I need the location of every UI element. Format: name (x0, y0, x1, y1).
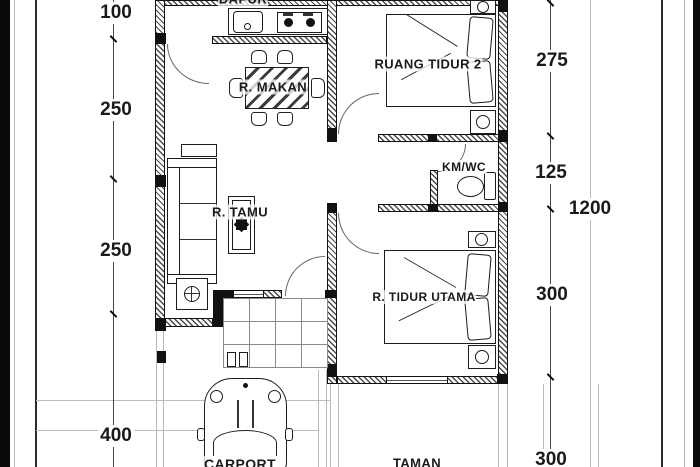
kitchen-divider-wall (212, 36, 327, 44)
sofa-cushion-line (180, 239, 216, 240)
stove-knob-icon (283, 13, 293, 16)
guide-line-right-1 (590, 0, 591, 467)
terrace-step (227, 352, 236, 367)
wall-projection-right-a (498, 384, 499, 467)
guide-line-right-2 (684, 0, 685, 467)
room-label-km-wc: KM/WC (441, 160, 487, 174)
column (428, 204, 438, 212)
front-door-arc (285, 256, 325, 296)
car-hood-line (237, 400, 239, 428)
column (223, 290, 234, 298)
room-label-r-tidur-utama: R. TIDUR UTAMA (371, 290, 476, 304)
left-image-border (0, 0, 10, 467)
right-image-border (693, 0, 700, 467)
burner-icon (306, 18, 315, 27)
dining-chair (251, 50, 267, 64)
nightstand-lamp-icon (476, 115, 490, 129)
car-emblem-icon (243, 383, 248, 388)
sink-drain-icon (244, 23, 251, 30)
room-label-dapur: DAPUR (218, 0, 268, 7)
pillow (466, 16, 494, 60)
column (155, 175, 166, 187)
nightstand-lamp-icon (477, 1, 489, 13)
column (498, 0, 508, 12)
terrace-projection-a (318, 370, 319, 467)
center-wall-lower (327, 212, 337, 384)
dim-right-275: 275 (534, 50, 570, 72)
burner-icon (284, 18, 293, 27)
end-table (181, 144, 217, 157)
bedroom2-south-wall (378, 134, 508, 142)
property-line-left (14, 0, 15, 467)
right-outer-wall (498, 0, 508, 384)
room-label-ruang-tidur-2: RUANG TIDUR 2 (373, 57, 482, 72)
dining-chair (251, 112, 267, 126)
dining-chair (311, 78, 325, 98)
dim-left-250b: 250 (98, 240, 134, 262)
column (325, 290, 337, 298)
center-wall-upper (327, 0, 337, 142)
side-table-lamp-icon (184, 286, 200, 302)
room-label-r-tamu: R. TAMU (211, 205, 269, 220)
column (155, 318, 166, 331)
column (498, 202, 508, 212)
nightstand-lamp-icon (475, 350, 489, 364)
terrace-step (239, 352, 248, 367)
dim-right-125: 125 (533, 162, 569, 184)
fence-post (157, 351, 166, 363)
room-label-r-makan: R. MAKAN (238, 80, 308, 95)
center-projection-b (338, 384, 339, 467)
room-label-taman: TAMAN (392, 456, 442, 467)
boundary-line-left (35, 0, 37, 467)
lamp-cross-icon (191, 287, 192, 301)
dim-right-300a: 300 (534, 284, 570, 306)
car-windshield (213, 430, 277, 456)
dim-left-100: 100 (98, 2, 134, 24)
master-door-arc (338, 213, 379, 254)
dining-chair (277, 50, 293, 64)
column (327, 364, 337, 377)
car-headlight-icon (268, 390, 281, 403)
dimension-line-left (113, 0, 114, 467)
car-headlight-icon (210, 390, 223, 403)
dim-left-250a: 250 (98, 99, 134, 121)
car-mirror-icon (285, 428, 293, 441)
master-south-wall-left (337, 376, 387, 384)
column (497, 374, 508, 384)
left-outer-wall (155, 0, 165, 330)
column (327, 128, 337, 142)
column (498, 130, 508, 142)
living-front-wall-left (165, 318, 213, 327)
living-window (233, 290, 263, 298)
sofa-seat (179, 167, 217, 275)
toilet-bowl-icon (457, 176, 484, 197)
terrace-corner-column (213, 290, 223, 327)
stove-knob-icon (303, 13, 313, 16)
dining-chair (277, 112, 293, 126)
master-south-wall-right (447, 376, 498, 384)
center-projection-a (330, 384, 331, 467)
lamp-cross-icon (185, 293, 199, 294)
living-front-wall-piece (263, 290, 282, 298)
floor-plan-canvas: DAPUR RUANG TIDUR 2 R. MAKAN KM/WC R. TA… (0, 0, 700, 467)
dim-right-1200: 1200 (567, 198, 613, 220)
kitchen-door-arc (167, 44, 209, 84)
room-label-carport: CARPORT (203, 456, 277, 467)
car-hood-line (252, 400, 254, 428)
wall-projection-right-b (507, 384, 508, 467)
bedroom2-door-arc (338, 93, 379, 134)
column (428, 134, 437, 142)
nightstand-lamp-icon (475, 233, 488, 246)
bathroom-south-wall (378, 204, 508, 212)
dim-left-400: 400 (98, 425, 134, 447)
column (327, 203, 337, 213)
toilet-tank-icon (484, 172, 496, 200)
master-window (387, 376, 447, 384)
dimension-line-1200 (661, 0, 663, 467)
garden-line-b (598, 384, 599, 467)
terrace-projection-b (326, 370, 327, 467)
column (155, 33, 166, 44)
car-mirror-icon (197, 428, 205, 441)
dim-right-300b: 300 (533, 449, 569, 467)
